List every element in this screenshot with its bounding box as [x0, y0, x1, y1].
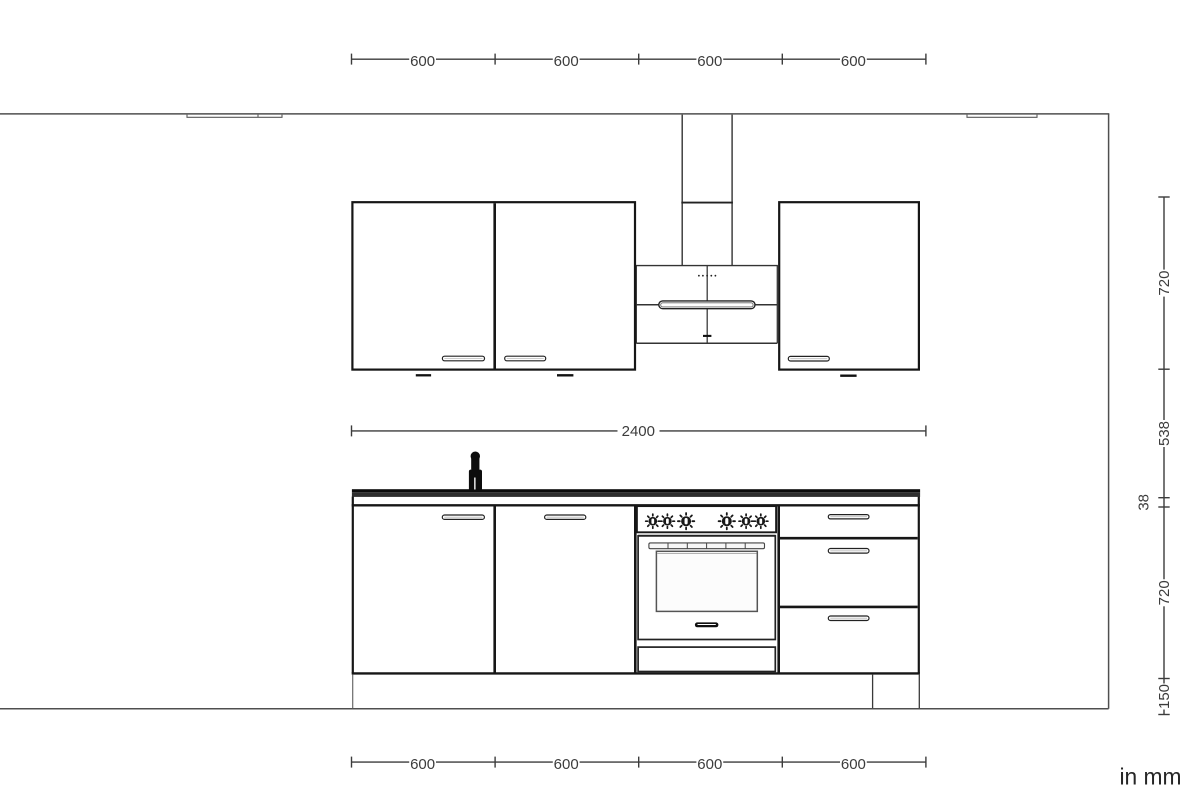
- svg-text:38: 38: [1136, 494, 1153, 511]
- svg-text:600: 600: [697, 53, 722, 70]
- svg-text:600: 600: [410, 53, 435, 70]
- svg-text:600: 600: [554, 756, 579, 773]
- svg-text:150: 150: [1156, 684, 1173, 709]
- svg-text:600: 600: [697, 756, 722, 773]
- svg-text:600: 600: [841, 756, 866, 773]
- svg-text:720: 720: [1156, 271, 1173, 296]
- svg-text:600: 600: [841, 53, 866, 70]
- svg-text:600: 600: [410, 756, 435, 773]
- svg-text:2400: 2400: [622, 423, 655, 440]
- svg-text:in mm: in mm: [1119, 764, 1181, 790]
- svg-text:720: 720: [1156, 580, 1173, 605]
- svg-text:538: 538: [1156, 421, 1173, 446]
- svg-text:600: 600: [554, 53, 579, 70]
